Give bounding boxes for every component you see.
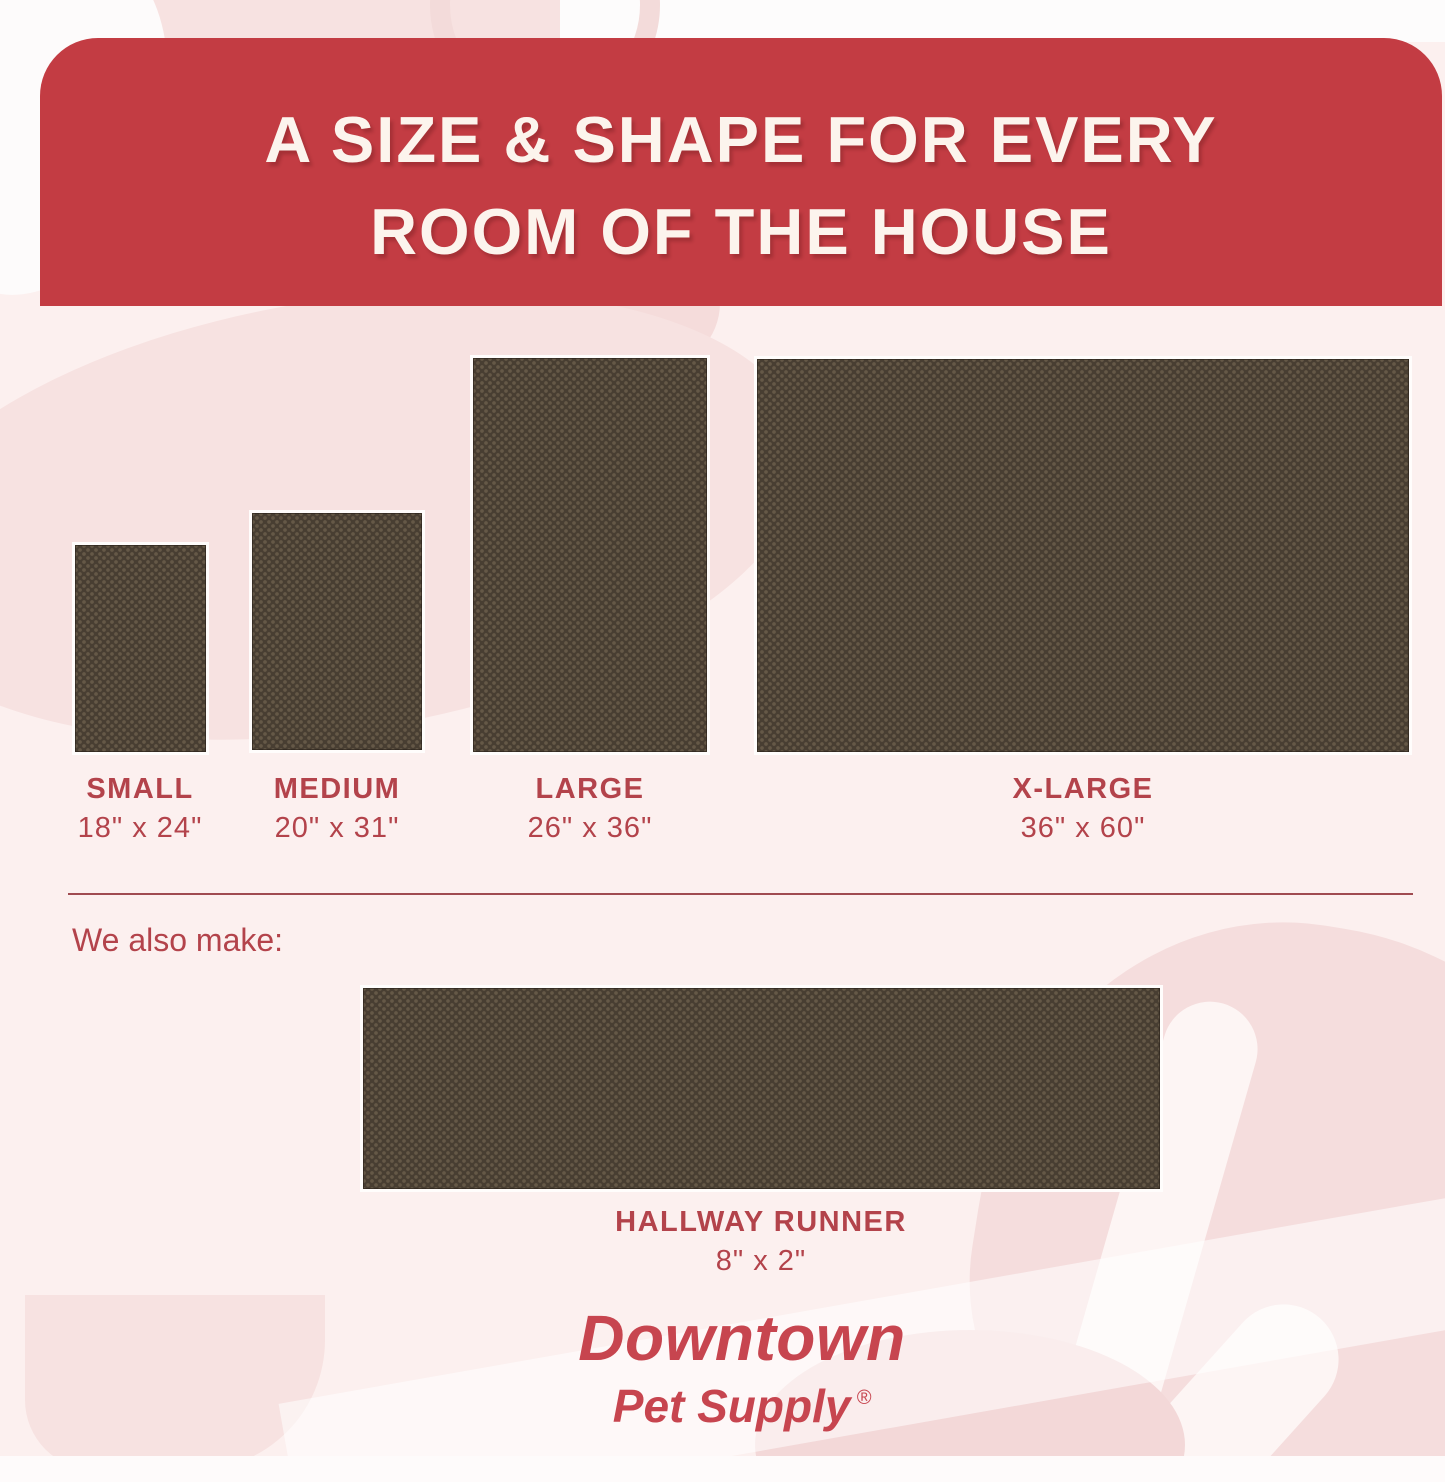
size-dims: 36" x 60" [933, 812, 1233, 845]
registered-mark: ® [856, 1387, 871, 1409]
size-name: X-LARGE [933, 773, 1233, 806]
header-title-line1: A SIZE & SHAPE FOR EVERY [40, 94, 1442, 186]
mat-hallway-runner [363, 988, 1160, 1189]
brand-logo: Downtown Pet Supply® [442, 1306, 1042, 1430]
size-name: HALLWAY RUNNER [611, 1206, 911, 1239]
brand-pet-supply-text: Pet Supply [613, 1380, 851, 1432]
brand-downtown: Downtown [442, 1306, 1042, 1370]
size-label-large: LARGE 26" x 36" [440, 773, 740, 845]
mat-xlarge [757, 359, 1409, 752]
mat-medium [252, 513, 422, 750]
size-dims: 26" x 36" [440, 812, 740, 845]
background-bottom-band [0, 1456, 1445, 1482]
background-blob-bottom-left [25, 1295, 325, 1470]
size-label-hallway-runner: HALLWAY RUNNER 8" x 2" [611, 1206, 911, 1278]
also-make-label: We also make: [72, 922, 283, 959]
brand-pet-supply: Pet Supply® [442, 1374, 1042, 1430]
size-name: LARGE [440, 773, 740, 806]
size-dims: 8" x 2" [611, 1245, 911, 1278]
mat-large [473, 358, 707, 752]
header-title-line2: ROOM OF THE HOUSE [40, 186, 1442, 278]
divider-line [68, 893, 1413, 895]
infographic-canvas: A SIZE & SHAPE FOR EVERY ROOM OF THE HOU… [0, 0, 1445, 1482]
header-banner: A SIZE & SHAPE FOR EVERY ROOM OF THE HOU… [40, 38, 1442, 306]
size-label-xlarge: X-LARGE 36" x 60" [933, 773, 1233, 845]
mat-small [75, 545, 206, 752]
top-strip-white [560, 0, 1445, 42]
